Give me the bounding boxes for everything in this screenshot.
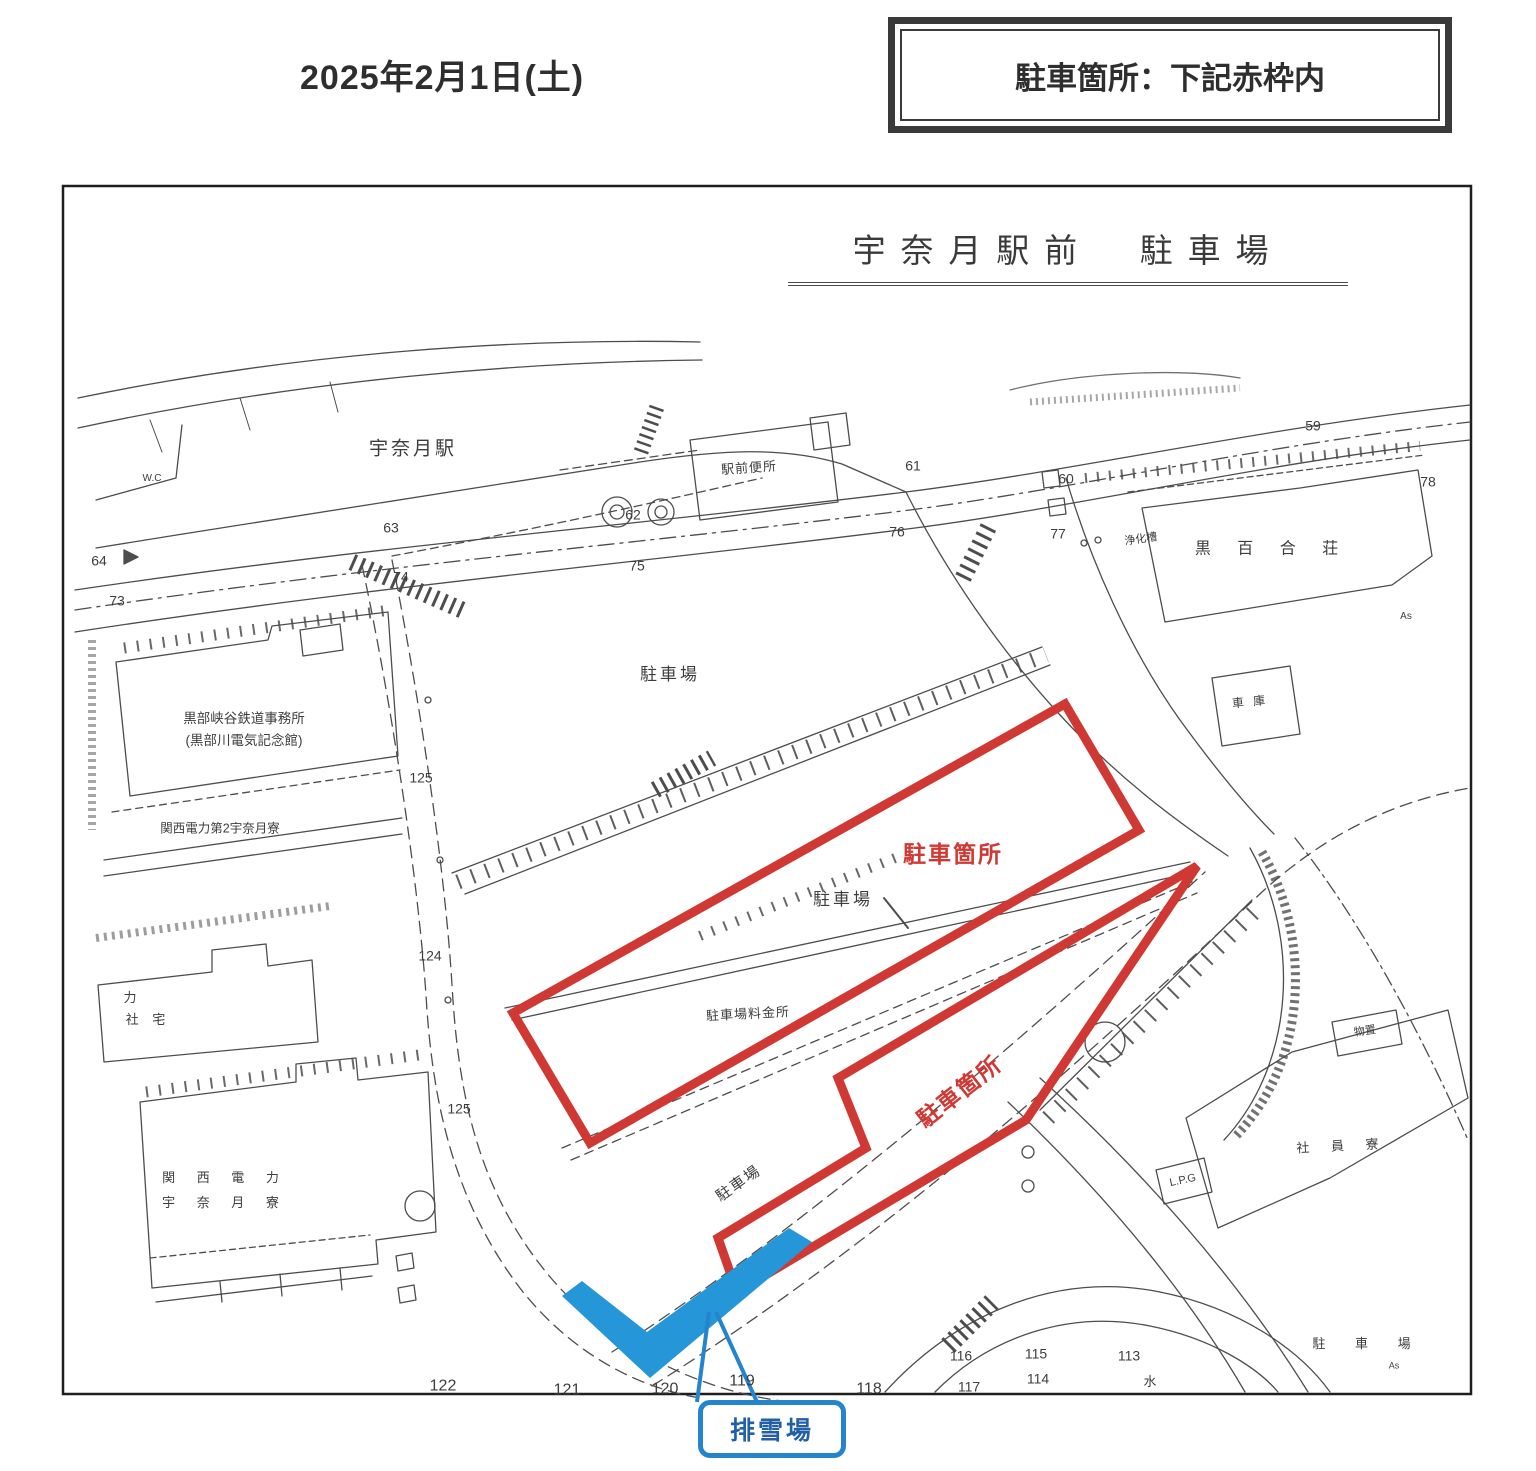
map-label: As <box>1400 611 1412 623</box>
map-label: 駐車箇所 <box>903 841 1003 869</box>
map-label: 関 西 電 力 <box>162 1170 288 1186</box>
map-marker: 114 <box>1027 1371 1049 1388</box>
map-label: 力 <box>123 990 136 1006</box>
map-label: (黒部川電気記念館) <box>186 733 303 749</box>
map-marker: 61 <box>905 458 921 475</box>
map-marker: 121 <box>554 1380 581 1399</box>
map-marker: 73 <box>109 593 125 610</box>
map-label: 宇 奈 月 寮 <box>162 1195 288 1211</box>
map-marker: 122 <box>430 1376 457 1395</box>
map-label: 社 宅 <box>126 1012 171 1028</box>
map-marker: 77 <box>1050 526 1066 543</box>
map-marker: 125 <box>447 1101 470 1118</box>
map-label: 駐車場 <box>813 890 873 910</box>
map-label: As <box>1389 1361 1400 1372</box>
map-label: W.C <box>143 473 162 485</box>
map-label: 黒 百 合 荘 <box>1195 539 1349 558</box>
map-title: 宇奈月駅前 駐車場 <box>788 224 1348 286</box>
map-marker: 125 <box>409 770 432 787</box>
map-marker: 75 <box>629 558 645 575</box>
map-marker: 120 <box>652 1379 679 1398</box>
notice-text: 駐車箇所：下記赤枠内 <box>900 29 1440 121</box>
map-marker: 64 <box>91 553 107 570</box>
map-label: 宇奈月駅 <box>369 439 457 462</box>
map-marker: 76 <box>889 524 905 541</box>
map-marker: 59 <box>1305 418 1321 435</box>
map-marker: 62 <box>625 507 641 524</box>
map-marker: 118 <box>856 1379 882 1398</box>
map-marker: 60 <box>1058 471 1074 488</box>
map-marker: 115 <box>1025 1346 1047 1363</box>
notice-box: 駐車箇所：下記赤枠内 <box>888 17 1452 133</box>
map-marker: 124 <box>418 948 441 965</box>
map-marker: 119 <box>729 1371 755 1390</box>
map-label: 駐 車 場 <box>1312 1336 1423 1352</box>
snow-disposal-callout: 排雪場 <box>698 1400 846 1458</box>
map-label: 駐車場 <box>640 665 700 685</box>
map-label: 黒部峡谷鉄道事務所 <box>183 711 305 727</box>
map-label: 関西電力第2宇奈月寮 <box>160 822 279 837</box>
map-marker: 117 <box>958 1379 980 1396</box>
map-label: 水 <box>1143 1374 1156 1390</box>
date-heading: 2025年2月1日(土) <box>300 50 584 99</box>
map-marker: 113 <box>1118 1348 1140 1365</box>
map-marker: 74 <box>393 569 409 586</box>
map-marker: 116 <box>950 1348 972 1365</box>
map-marker: 63 <box>383 520 399 537</box>
map-marker: 78 <box>1420 474 1436 491</box>
